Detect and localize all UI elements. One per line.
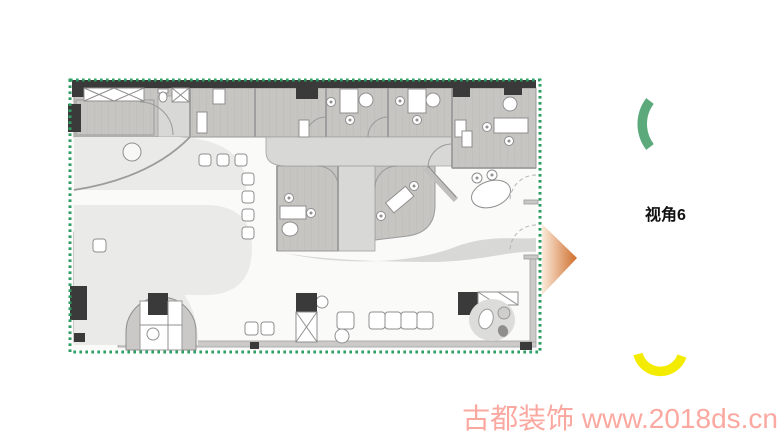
door-slab [213, 89, 225, 104]
plant-circle [123, 143, 141, 161]
door-slab [462, 131, 472, 147]
cabinet-x-units [84, 88, 144, 101]
door-slab [197, 112, 207, 133]
stool [245, 322, 258, 335]
door-slab [299, 120, 309, 137]
toilet-fixture [158, 89, 168, 102]
hatched-column [296, 293, 317, 342]
green-arc [642, 101, 650, 147]
shower-box [172, 88, 189, 102]
stool [93, 239, 106, 252]
stool [261, 322, 274, 335]
viewpoint-arrow [542, 224, 577, 295]
screenshot-canvas: 视角6 古都装饰 www.2018ds.cn [0, 0, 780, 438]
watermark-text: 古都装饰 www.2018ds.cn [462, 397, 778, 437]
viewpoint-label: 视角6 [645, 201, 686, 225]
yellow-arc [638, 354, 682, 371]
